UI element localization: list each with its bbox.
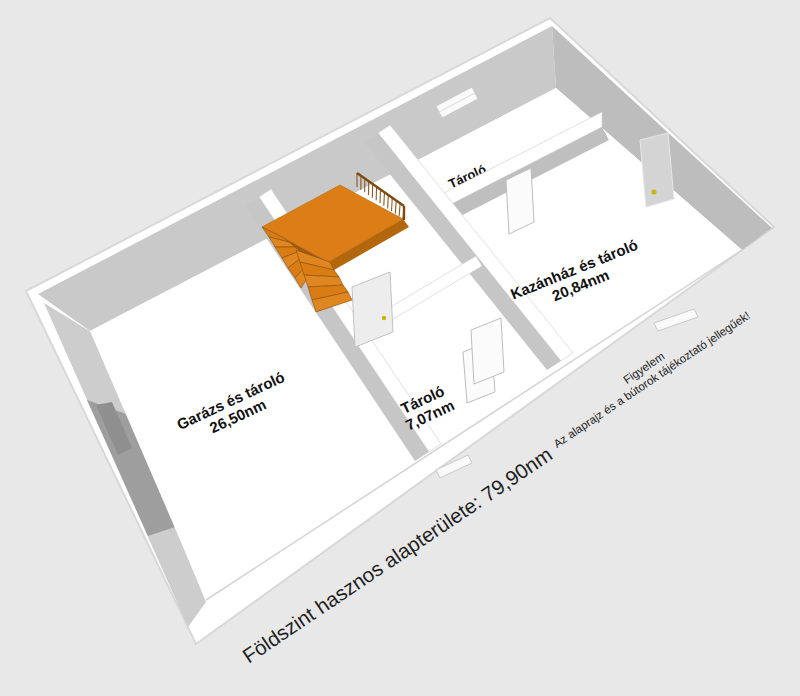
floorplan-3d-view: Tároló xyxy=(0,0,800,696)
door-ne-handle-icon xyxy=(652,190,657,195)
door-cross-handle-icon xyxy=(382,316,386,320)
door-leaf-wall3 xyxy=(506,168,534,234)
door-ne xyxy=(640,133,674,207)
door-leaf-wall2 xyxy=(471,318,504,384)
stair-baluster xyxy=(388,195,389,208)
stair-baluster xyxy=(380,190,381,204)
stair-baluster xyxy=(384,192,385,205)
floorplan-canvas: Tároló xyxy=(0,0,800,696)
